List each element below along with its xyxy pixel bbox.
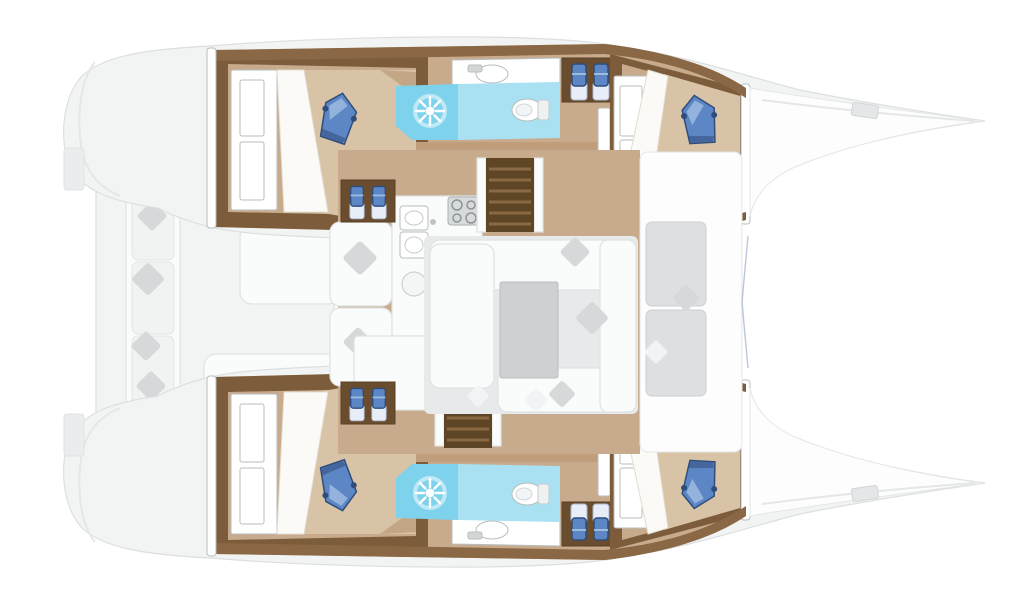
round-basin (402, 272, 426, 296)
sofa-left (430, 244, 494, 388)
sink-icon (400, 206, 428, 230)
salon (330, 150, 742, 454)
sofa-right (600, 240, 636, 412)
salon-table (500, 282, 558, 378)
forward-seat-cushion (646, 222, 706, 306)
foredeck (742, 236, 748, 368)
entry-pad-top (341, 180, 395, 222)
entry-pad-bottom (341, 382, 395, 424)
catamaran-floorplan (0, 0, 1024, 604)
dinette (424, 236, 638, 414)
forestay-line (742, 302, 748, 368)
cockpit-bench (126, 182, 180, 420)
stairs-top-hull (477, 158, 543, 232)
forward-cockpit (640, 152, 742, 452)
sink-icon (400, 232, 428, 258)
floorplan-canvas (0, 0, 1024, 604)
faucet-icon (430, 219, 436, 225)
forestay-line (742, 236, 748, 302)
